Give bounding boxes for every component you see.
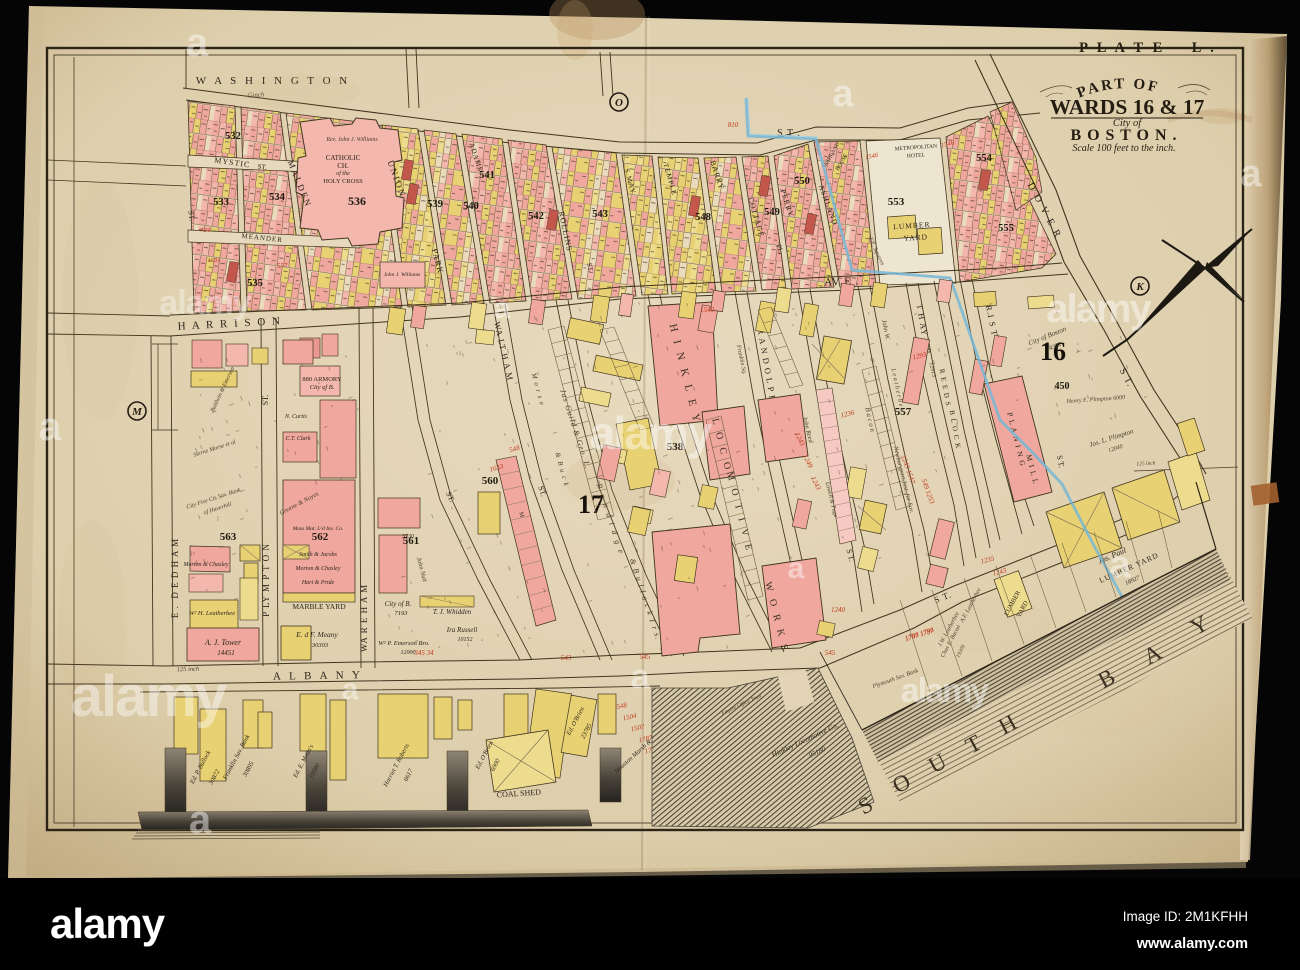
svg-text:YARD: YARD	[903, 232, 928, 243]
svg-text:539: 539	[427, 199, 443, 210]
svg-text:www.alamy.com: www.alamy.com	[1136, 936, 1248, 952]
svg-text:563: 563	[220, 531, 237, 543]
svg-text:533: 533	[213, 197, 229, 208]
svg-text:C.T. Clark: C.T. Clark	[285, 436, 310, 442]
svg-text:560: 560	[482, 475, 499, 487]
svg-text:a: a	[39, 405, 62, 449]
svg-text:30303: 30303	[311, 642, 329, 649]
svg-text:545: 545	[825, 649, 836, 657]
svg-text:542: 542	[528, 211, 544, 222]
svg-text:HOLY CROSS: HOLY CROSS	[323, 178, 363, 185]
svg-text:12000: 12000	[401, 650, 416, 656]
svg-text:Hart & Pride: Hart & Pride	[301, 580, 335, 586]
svg-text:A. J. Tower: A. J. Tower	[204, 638, 242, 647]
svg-text:557: 557	[277, 262, 288, 270]
svg-text:Mass Mut. L²d Ins. Co.: Mass Mut. L²d Ins. Co.	[292, 526, 344, 532]
svg-text:W² H. Leatherbee: W² H. Leatherbee	[189, 610, 235, 617]
svg-text:a: a	[189, 798, 212, 842]
svg-text:562: 562	[312, 531, 329, 543]
svg-text:7193: 7193	[395, 610, 409, 617]
svg-text:553: 553	[888, 196, 905, 208]
svg-text:ST.: ST.	[261, 395, 270, 406]
svg-text:724: 724	[200, 227, 211, 234]
svg-text:M: M	[131, 406, 143, 418]
svg-text:E. d F. Meany: E. d F. Meany	[295, 630, 338, 639]
svg-text:532: 532	[225, 131, 241, 142]
svg-text:Ira Russell: Ira Russell	[446, 626, 478, 634]
svg-text:alamy: alamy	[159, 284, 251, 322]
svg-text:Image ID: 2M1KFHH: Image ID: 2M1KFHH	[1123, 909, 1248, 924]
svg-text:540: 540	[463, 201, 479, 212]
svg-text:543: 543	[592, 209, 608, 220]
svg-text:550: 550	[794, 176, 810, 187]
svg-text:WARDS 16 & 17: WARDS 16 & 17	[1050, 95, 1205, 119]
svg-text:345 34: 345 34	[413, 649, 434, 657]
svg-text:a: a	[342, 673, 359, 706]
svg-text:555: 555	[998, 223, 1014, 234]
svg-text:CH.: CH.	[337, 162, 349, 170]
svg-text:1531: 1531	[208, 257, 221, 264]
svg-text:alamy: alamy	[590, 407, 713, 459]
svg-text:a: a	[788, 552, 805, 585]
svg-text:CATHOLIC: CATHOLIC	[326, 154, 361, 162]
svg-text:O: O	[615, 97, 623, 109]
svg-text:W² P. Emerson Bro.: W² P. Emerson Bro.	[378, 640, 430, 647]
svg-text:alamy: alamy	[50, 900, 166, 947]
svg-text:10152: 10152	[458, 637, 473, 643]
svg-text:B O S T O N .: B O S T O N .	[1070, 127, 1177, 144]
svg-text:alamy: alamy	[1046, 287, 1152, 331]
svg-text:E . D E D H A M: E . D E D H A M	[170, 538, 180, 618]
svg-text:a: a	[631, 658, 651, 696]
svg-text:T. J. Whidden: T. J. Whidden	[433, 608, 472, 616]
svg-text:810: 810	[728, 121, 739, 129]
svg-text:Scale 100 feet to the inch.: Scale 100 feet to the inch.	[1072, 143, 1175, 154]
svg-text:548: 548	[695, 212, 711, 223]
svg-text:3730: 3730	[401, 534, 414, 540]
svg-text:alamy: alamy	[71, 664, 227, 729]
svg-text:Smith & Jacobs: Smith & Jacobs	[299, 552, 338, 558]
svg-text:a: a	[1240, 153, 1262, 195]
svg-text:a: a	[494, 292, 511, 325]
svg-text:ST.: ST.	[257, 162, 268, 171]
svg-text:543: 543	[561, 654, 572, 662]
svg-text:Morton & Chasley: Morton & Chasley	[295, 566, 341, 572]
svg-text:alamy: alamy	[901, 672, 989, 710]
svg-text:City of B.: City of B.	[385, 600, 412, 608]
svg-text:549: 549	[764, 207, 780, 218]
svg-text:534: 534	[269, 192, 286, 203]
svg-text:MARBLE YARD: MARBLE YARD	[292, 602, 346, 611]
svg-text:1240: 1240	[831, 606, 846, 614]
svg-text:P LY M P T O N: P LY M P T O N	[261, 543, 271, 617]
svg-text:Rev. John J. Williams: Rev. John J. Williams	[325, 137, 378, 143]
svg-text:WA R E H A M: WA R E H A M	[359, 584, 369, 652]
svg-text:Morton & Chasley: Morton & Chasley	[183, 562, 229, 568]
svg-text:John J. Williams: John J. Williams	[384, 272, 421, 278]
svg-text:a: a	[832, 73, 854, 115]
svg-text:P L A T E L .: P L A T E L .	[1079, 40, 1217, 56]
svg-text:a: a	[186, 21, 209, 65]
svg-text:City of B.: City of B.	[310, 384, 335, 391]
svg-text:541: 541	[479, 170, 495, 181]
svg-text:of the: of the	[336, 170, 350, 177]
svg-text:450: 450	[1055, 381, 1070, 392]
svg-text:1540: 1540	[700, 306, 715, 314]
svg-text:125 inch: 125 inch	[1136, 460, 1156, 467]
svg-text:ST.: ST.	[186, 209, 197, 221]
svg-text:554: 554	[976, 153, 993, 164]
svg-text:14451: 14451	[217, 649, 235, 657]
svg-text:a: a	[1109, 544, 1131, 586]
svg-text:880 ARMORY: 880 ARMORY	[302, 376, 341, 383]
svg-text:N. Curtis: N. Curtis	[284, 414, 308, 420]
svg-text:536: 536	[348, 194, 366, 208]
